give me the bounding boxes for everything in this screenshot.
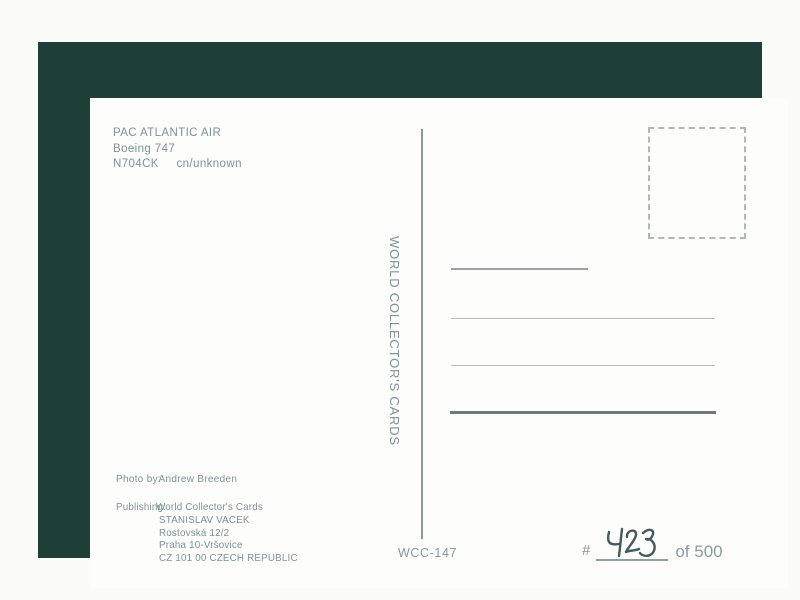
publisher-block: Publishing: World Collector's Cards STAN… [116,502,298,566]
postcard-frame: PAC ATLANTIC AIR Boeing 747 N704CK cn/un… [38,42,762,558]
publisher-country: CZ 101 00 CZECH REPUBLIC [156,553,298,566]
registration-line: N704CK cn/unknown [113,157,242,173]
address-line-3 [451,365,715,366]
publisher-address: World Collector's Cards STANISLAV VACEK … [156,502,298,566]
aircraft-type: Boeing 747 [113,142,242,158]
handwritten-number [598,524,662,566]
address-line-2 [451,318,715,319]
brand-vertical-text: WORLD COLLECTOR'S CARDS [387,236,402,446]
card-number: WCC-147 [398,546,457,560]
serial-underline [596,529,668,561]
photo-credit: Photo by: Andrew Breeden [116,474,237,485]
serial-prefix: # [582,542,590,562]
center-divider-line [421,129,423,539]
photographer-name: Andrew Breeden [159,474,238,485]
construction-number: cn/unknown [176,158,241,170]
publisher-street: Rostovská 12/2 [156,528,298,541]
postcard-scan: PAC ATLANTIC AIR Boeing 747 N704CK cn/un… [0,0,800,600]
publisher-label: Publishing: [116,502,156,566]
stamp-box [648,127,746,239]
publisher-city: Praha 10-Vršovice [156,540,298,553]
airline-name: PAC ATLANTIC AIR [113,126,242,142]
publisher-name: World Collector's Cards [156,502,298,515]
address-line-1 [451,268,588,270]
address-line-4 [450,411,716,414]
serial-number-block: # of 500 [582,528,723,562]
photo-credit-label: Photo by: [116,474,156,485]
serial-suffix: of 500 [675,542,722,562]
postcard-back: PAC ATLANTIC AIR Boeing 747 N704CK cn/un… [90,98,788,588]
publisher-person: STANISLAV VACEK [156,515,298,528]
photo-caption: PAC ATLANTIC AIR Boeing 747 N704CK cn/un… [113,126,242,173]
registration: N704CK [113,158,159,170]
